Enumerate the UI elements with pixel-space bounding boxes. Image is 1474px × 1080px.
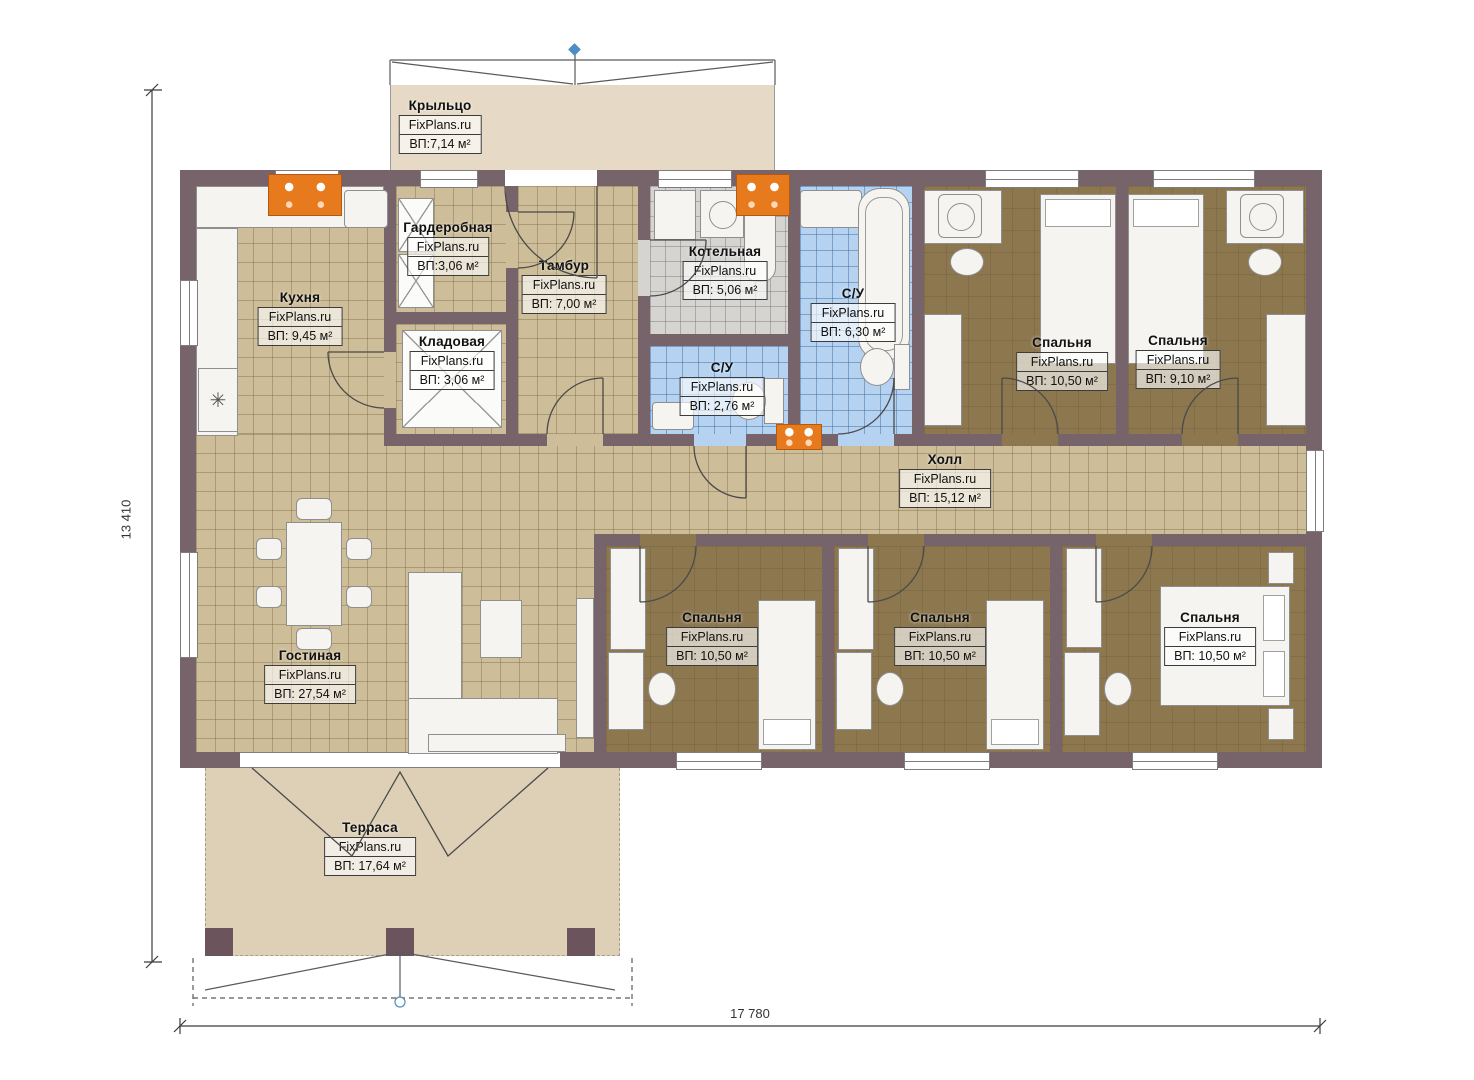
wardrobe-unit — [838, 548, 874, 650]
room-area: ВП: 10,50 м² — [1017, 372, 1107, 390]
desk-chair — [648, 672, 676, 706]
wall-wardrobe-pantry — [384, 312, 518, 324]
entrance-opening — [505, 170, 597, 186]
terrace-door-opening — [240, 752, 560, 768]
door-opening-vestibule — [547, 434, 603, 446]
roof-ridge-marker — [568, 43, 581, 56]
terrace-post — [386, 928, 414, 956]
bed-single — [758, 600, 816, 750]
boiler-burners — [736, 174, 790, 216]
room-name: Холл — [899, 452, 991, 467]
wall-bathroom-bedroom1 — [912, 186, 924, 434]
dimension-height: 13 410 — [119, 490, 134, 550]
room-area: ВП: 27,54 м² — [265, 685, 355, 703]
door-opening-bedroom-bottom3 — [1096, 534, 1152, 546]
room-area: ВП: 17,64 м² — [325, 857, 415, 875]
door-opening-pantry — [384, 352, 396, 408]
label-bedroom-bottom2: Спальня FixPlans.ruВП: 10,50 м² — [894, 610, 986, 666]
bed-single — [986, 600, 1044, 750]
desk-printer — [938, 194, 982, 238]
brand-watermark: FixPlans.ru — [667, 628, 757, 647]
dining-chair — [346, 586, 372, 608]
dining-chair — [296, 498, 332, 520]
window-hall-right — [1306, 450, 1324, 532]
wall-bedroom3-bedroom4 — [822, 546, 834, 752]
room-name: Спальня — [666, 610, 758, 625]
brand-watermark: FixPlans.ru — [895, 628, 985, 647]
dining-table — [286, 522, 342, 626]
label-wardrobe: Гардеробная FixPlans.ruВП:3,06 м² — [403, 220, 493, 276]
brand-watermark: FixPlans.ru — [265, 666, 355, 685]
label-boiler: Котельная FixPlans.ruВП: 5,06 м² — [683, 244, 768, 300]
terrace-post — [567, 928, 595, 956]
brand-watermark: FixPlans.ru — [1017, 353, 1107, 372]
door-opening-bedroom-top2 — [1182, 434, 1238, 446]
stove-burners — [268, 174, 342, 216]
room-area: ВП:7,14 м² — [400, 135, 481, 153]
window-bedroom-bottom2 — [904, 752, 990, 770]
dining-chair — [296, 628, 332, 650]
room-area: ВП: 9,10 м² — [1137, 370, 1220, 388]
room-area: ВП: 10,50 м² — [1165, 647, 1255, 665]
room-name: Спальня — [1016, 335, 1108, 350]
room-name: С/У — [680, 360, 765, 375]
fridge: ✳ — [198, 368, 238, 432]
room-name: Спальня — [894, 610, 986, 625]
desk-chair — [1104, 672, 1132, 706]
brand-watermark: FixPlans.ru — [408, 238, 489, 257]
wall-boiler-wc — [650, 334, 788, 346]
nightstand — [1268, 708, 1294, 740]
tv-bench — [428, 734, 566, 752]
room-name: Кладовая — [410, 334, 495, 349]
desk — [1064, 652, 1100, 736]
wardrobe-unit — [924, 314, 962, 426]
desk — [836, 652, 872, 730]
door-opening-boiler — [638, 240, 650, 296]
window-bedroom-top1 — [985, 170, 1079, 188]
window-bedroom-bottom3 — [1132, 752, 1218, 770]
window-boiler-top — [658, 170, 732, 188]
boiler-cabinet — [654, 190, 696, 240]
bathroom-toilet-tank — [894, 344, 910, 390]
window-bedroom-bottom1 — [676, 752, 762, 770]
porch-roof-lines — [390, 50, 775, 85]
label-bathroom: С/У FixPlans.ruВП: 6,30 м² — [811, 286, 896, 342]
window-bedroom-top2 — [1153, 170, 1255, 188]
room-area: ВП: 15,12 м² — [900, 489, 990, 507]
nightstand — [1268, 552, 1294, 584]
window-wardrobe-top — [420, 170, 478, 188]
wardrobe-unit — [610, 548, 646, 650]
wall-hall-bottomrow — [594, 534, 1306, 546]
door-opening-bedroom-bottom1 — [640, 534, 696, 546]
label-bedroom-top1: Спальня FixPlans.ruВП: 10,50 м² — [1016, 335, 1108, 391]
brand-watermark: FixPlans.ru — [259, 308, 342, 327]
coffee-table — [480, 600, 522, 658]
desk-chair — [876, 672, 904, 706]
brand-watermark: FixPlans.ru — [325, 838, 415, 857]
label-bedroom-top2: Спальня FixPlans.ruВП: 9,10 м² — [1136, 333, 1221, 389]
room-name: Спальня — [1136, 333, 1221, 348]
brand-watermark: FixPlans.ru — [523, 276, 606, 295]
room-name: Гардеробная — [403, 220, 493, 235]
door-opening-wardrobe — [506, 212, 518, 268]
room-area: ВП: 3,06 м² — [411, 371, 494, 389]
brand-watermark: FixPlans.ru — [400, 116, 481, 135]
room-area: ВП: 5,06 м² — [684, 281, 767, 299]
window-living-left — [180, 552, 198, 658]
label-terrace: Терраса FixPlans.ruВП: 17,64 м² — [324, 820, 416, 876]
room-name: Котельная — [683, 244, 768, 259]
room-area: ВП: 10,50 м² — [895, 647, 985, 665]
terrace-post — [205, 928, 233, 956]
dining-chair — [256, 586, 282, 608]
desk — [608, 652, 644, 730]
brand-watermark: FixPlans.ru — [684, 262, 767, 281]
desk-printer — [1240, 194, 1284, 238]
room-area: ВП: 7,00 м² — [523, 295, 606, 313]
dining-chair — [346, 538, 372, 560]
door-opening-bathroom — [838, 434, 894, 446]
brand-watermark: FixPlans.ru — [1165, 628, 1255, 647]
wardrobe-unit — [1266, 314, 1306, 426]
wall-living-bedroom3 — [594, 534, 606, 752]
terrace-roof-lines — [193, 952, 632, 1007]
brand-watermark: FixPlans.ru — [812, 304, 895, 323]
desk-chair — [1248, 248, 1282, 276]
wall-bedroom1-bedroom2 — [1116, 186, 1128, 434]
wc-toilet-tank — [764, 378, 784, 424]
kitchen-sink — [344, 190, 388, 228]
room-name: Кухня — [258, 290, 343, 305]
room-name: Гостиная — [264, 648, 356, 663]
wall-outer-left — [180, 170, 196, 768]
room-area: ВП: 10,50 м² — [667, 647, 757, 665]
desk-chair — [950, 248, 984, 276]
brand-watermark: FixPlans.ru — [681, 378, 764, 397]
brand-watermark: FixPlans.ru — [900, 470, 990, 489]
door-opening-bedroom-bottom2 — [868, 534, 924, 546]
brand-watermark: FixPlans.ru — [411, 352, 494, 371]
room-name: С/У — [811, 286, 896, 301]
sofa-back — [408, 572, 462, 704]
floor-plan: ✳ — [0, 0, 1474, 1080]
room-name: Крыльцо — [399, 98, 482, 113]
label-bedroom-bottom1: Спальня FixPlans.ruВП: 10,50 м² — [666, 610, 758, 666]
hall-radiator — [776, 424, 822, 450]
room-area: ВП: 6,30 м² — [812, 323, 895, 341]
room-name: Терраса — [324, 820, 416, 835]
brand-watermark: FixPlans.ru — [1137, 351, 1220, 370]
label-kitchen: Кухня FixPlans.ruВП: 9,45 м² — [258, 290, 343, 346]
room-area: ВП:3,06 м² — [408, 257, 489, 275]
side-unit — [576, 598, 594, 738]
room-name: Тамбур — [522, 258, 607, 273]
room-name: Спальня — [1164, 610, 1256, 625]
label-hall: Холл FixPlans.ruВП: 15,12 м² — [899, 452, 991, 508]
label-porch: Крыльцо FixPlans.ruВП:7,14 м² — [399, 98, 482, 154]
wall-wc-bathroom — [788, 186, 800, 434]
bathroom-toilet-bowl — [860, 348, 894, 386]
wardrobe-unit — [1066, 548, 1102, 648]
bathroom-sink — [800, 190, 862, 228]
dimension-width: 17 780 — [700, 1006, 800, 1021]
window-kitchen-left — [180, 280, 198, 346]
room-area: ВП: 9,45 м² — [259, 327, 342, 345]
wall-vestibule-boiler — [638, 186, 650, 434]
label-vestibule: Тамбур FixPlans.ruВП: 7,00 м² — [522, 258, 607, 314]
label-wc: С/У FixPlans.ruВП: 2,76 м² — [680, 360, 765, 416]
door-opening-wc — [694, 434, 746, 446]
label-bedroom-bottom3: Спальня FixPlans.ruВП: 10,50 м² — [1164, 610, 1256, 666]
label-pantry: Кладовая FixPlans.ruВП: 3,06 м² — [410, 334, 495, 390]
label-living: Гостиная FixPlans.ruВП: 27,54 м² — [264, 648, 356, 704]
room-area: ВП: 2,76 м² — [681, 397, 764, 415]
wall-bedroom4-bedroom5 — [1050, 546, 1062, 752]
dining-chair — [256, 538, 282, 560]
door-opening-bedroom-top1 — [1002, 434, 1058, 446]
